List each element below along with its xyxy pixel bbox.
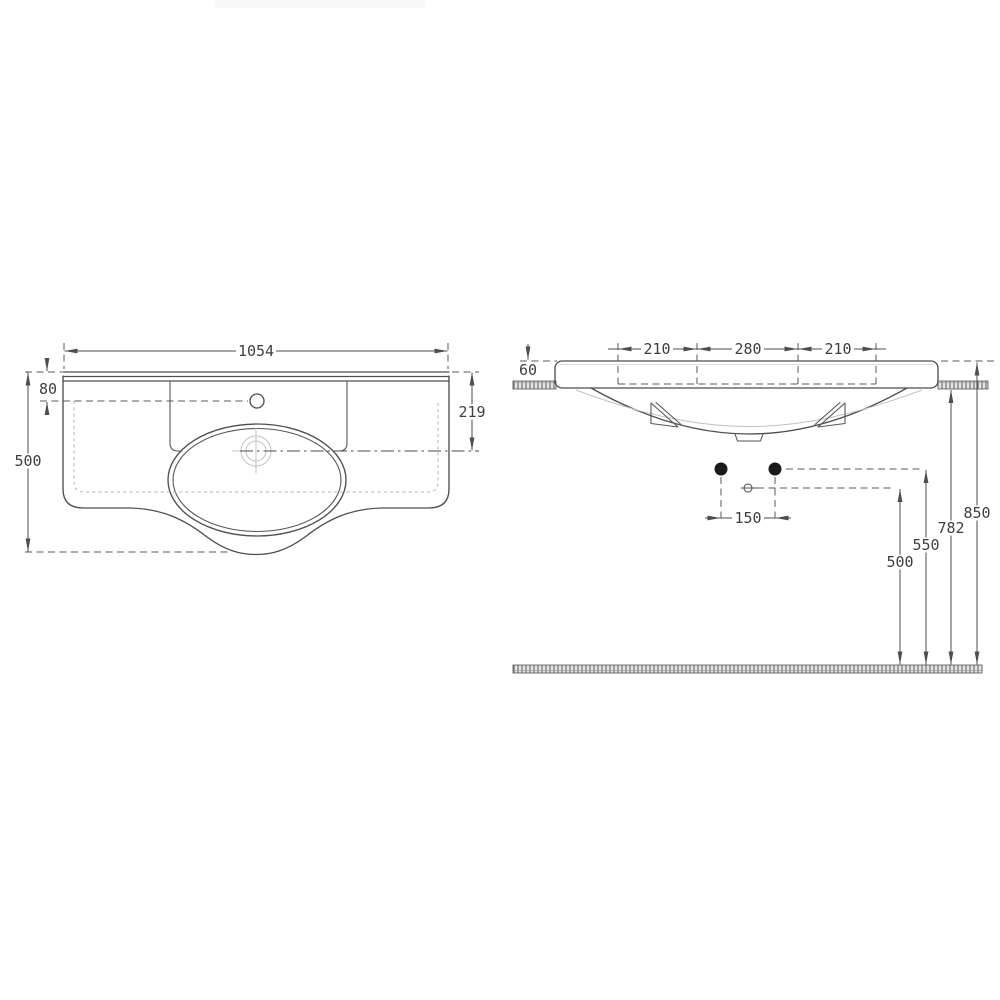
dim-label-fixing-hole-spacing: 150 bbox=[734, 509, 761, 527]
bowl-underside-curve bbox=[591, 388, 907, 434]
dim-label-overall-depth: 500 bbox=[14, 452, 41, 470]
wall-hatch-left bbox=[513, 381, 556, 389]
dim-label-height-fixing-holes: 550 bbox=[912, 536, 939, 554]
front-view: 210 280 210 60 150 850 782 bbox=[513, 340, 996, 673]
fixing-hole-left bbox=[715, 463, 728, 476]
wall-hatch-right bbox=[938, 381, 988, 389]
dim-rim-thickness: 60 bbox=[517, 344, 539, 379]
faucet-hole bbox=[250, 394, 264, 408]
floor-hatch bbox=[513, 665, 982, 673]
dim-label-span-center: 280 bbox=[734, 340, 761, 358]
dim-label-height-underside: 782 bbox=[937, 519, 964, 537]
dim-label-span-right: 210 bbox=[824, 340, 851, 358]
dim-height-waste-outlet: 500 bbox=[884, 489, 916, 665]
dim-label-span-left: 210 bbox=[643, 340, 670, 358]
fixing-hole-right bbox=[769, 463, 782, 476]
dim-overall-depth: 500 bbox=[12, 373, 44, 552]
dim-height-underside: 782 bbox=[935, 390, 967, 665]
waste-trap bbox=[735, 434, 763, 441]
bowl-inner-back-curve bbox=[576, 390, 922, 427]
dim-label-rim-thickness: 60 bbox=[519, 361, 537, 379]
dim-label-height-waste-outlet: 500 bbox=[886, 553, 913, 571]
top-view: 1054 80 500 219 bbox=[12, 342, 488, 555]
dim-label-back-to-drain: 219 bbox=[458, 403, 485, 421]
dim-label-back-to-faucet: 80 bbox=[39, 380, 57, 398]
dim-back-to-faucet: 80 bbox=[37, 358, 59, 415]
washbasin-dimension-drawing: 1054 80 500 219 bbox=[0, 0, 1000, 1000]
watermark-remnant bbox=[215, 0, 425, 8]
dim-label-overall-width: 1054 bbox=[238, 342, 274, 360]
dim-span-chain: 210 280 210 bbox=[608, 340, 886, 358]
dim-fixing-hole-spacing: 150 bbox=[705, 509, 791, 527]
bowl-ellipse-inner bbox=[173, 429, 341, 532]
dim-label-height-rim-top: 850 bbox=[963, 504, 990, 522]
dim-back-to-drain: 219 bbox=[456, 373, 488, 451]
dim-overall-width: 1054 bbox=[65, 342, 448, 360]
technical-drawing-page: 1054 80 500 219 bbox=[0, 0, 1000, 1000]
dim-height-rim-top: 850 bbox=[961, 363, 993, 665]
